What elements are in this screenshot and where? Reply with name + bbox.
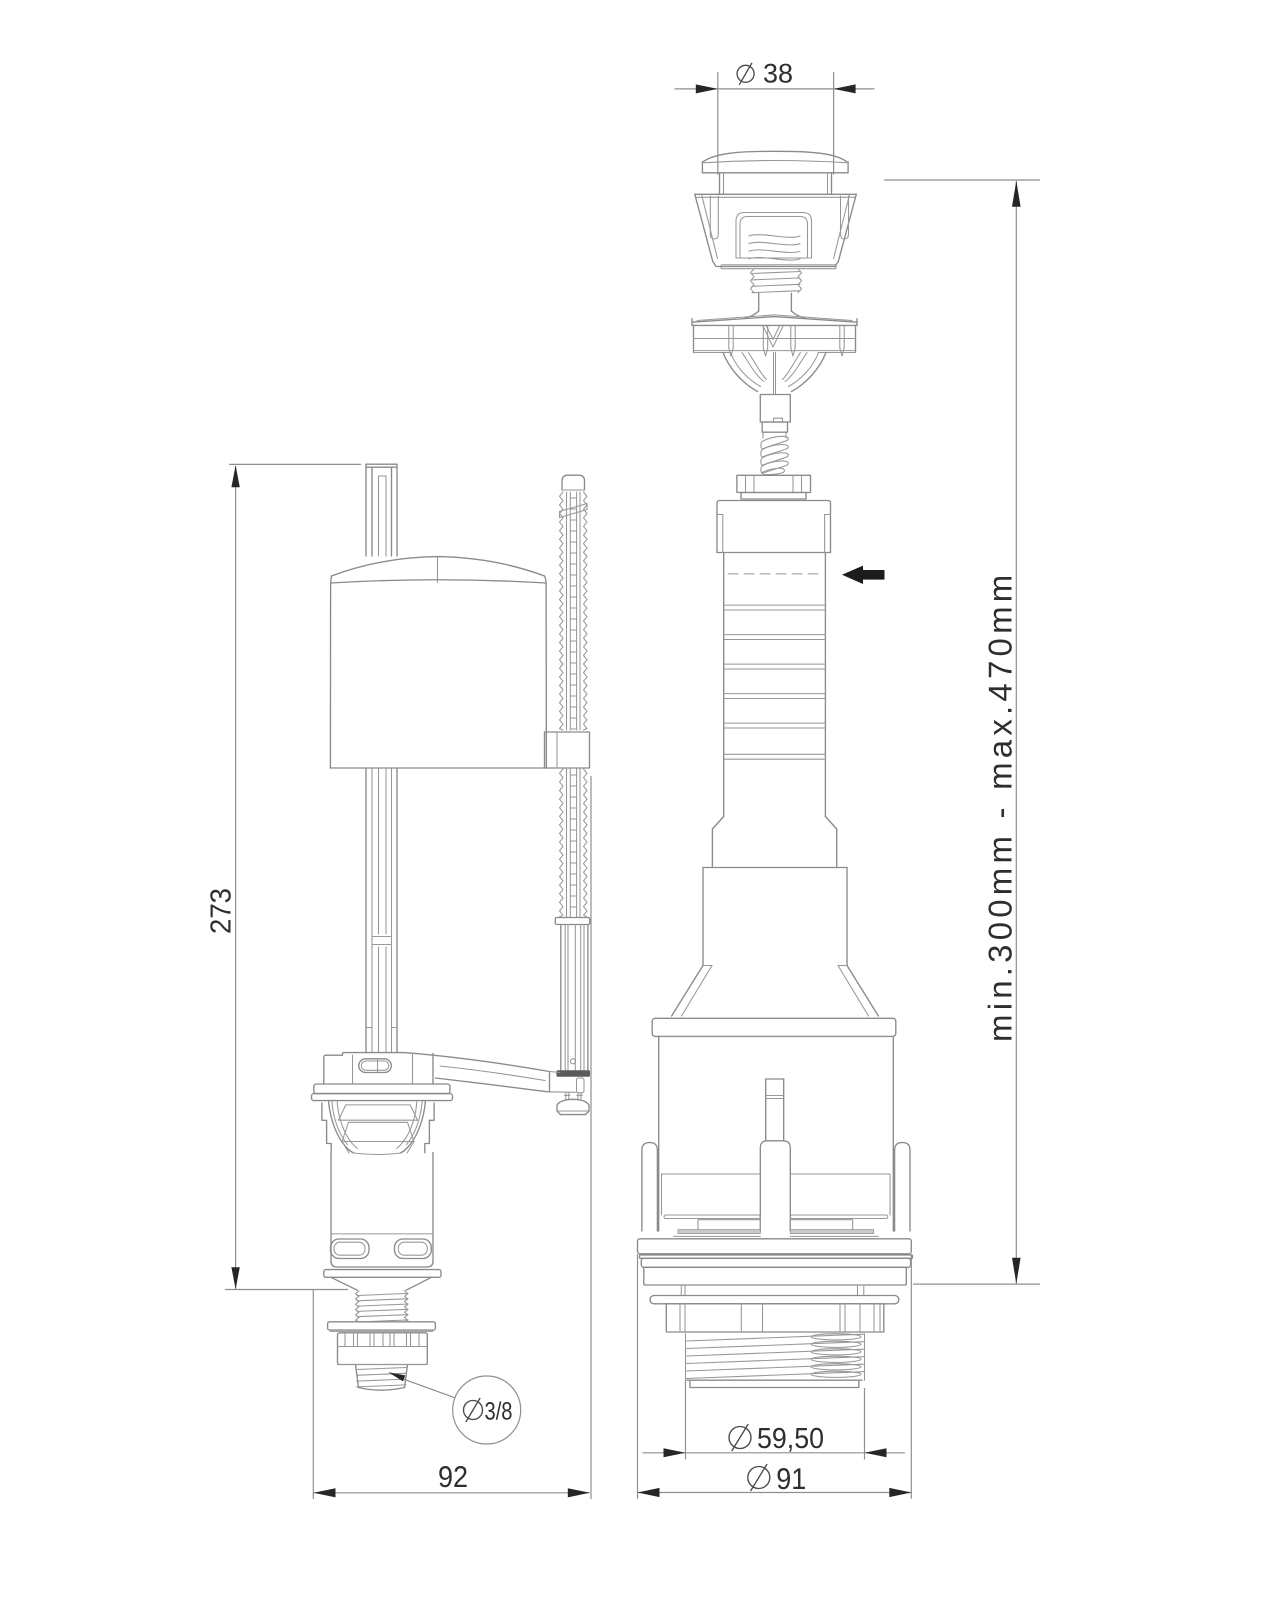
svg-text:92: 92 bbox=[438, 1461, 468, 1494]
svg-text:min.300mm - max.470mm: min.300mm - max.470mm bbox=[982, 571, 1019, 1042]
svg-text:3/8: 3/8 bbox=[485, 1398, 513, 1426]
svg-text:59,50: 59,50 bbox=[757, 1423, 824, 1455]
svg-text:91: 91 bbox=[776, 1463, 806, 1496]
svg-text:273: 273 bbox=[206, 888, 238, 934]
svg-text:38: 38 bbox=[763, 59, 793, 89]
